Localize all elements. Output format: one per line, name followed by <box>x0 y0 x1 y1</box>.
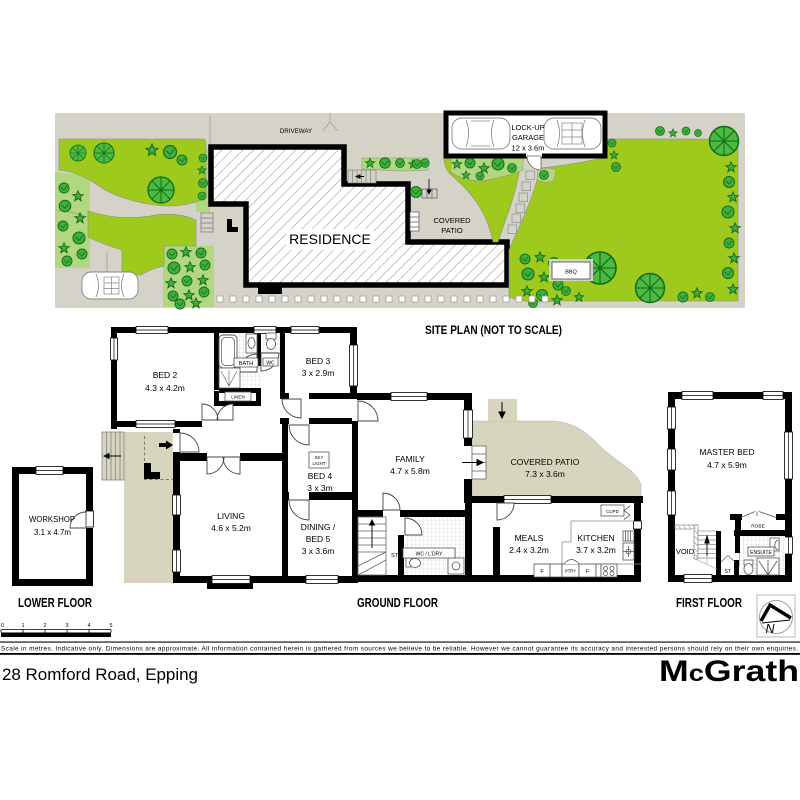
svg-text:3.1 x 4.7m: 3.1 x 4.7m <box>34 527 71 537</box>
svg-text:PATIO: PATIO <box>441 226 463 235</box>
svg-text:3: 3 <box>66 623 69 629</box>
svg-text:4.7 x 5.8m: 4.7 x 5.8m <box>390 466 430 476</box>
svg-text:ENSUITE: ENSUITE <box>750 550 772 556</box>
svg-text:3 x 3.6m: 3 x 3.6m <box>302 546 335 556</box>
svg-text:GROUND FLOOR: GROUND FLOOR <box>357 596 438 610</box>
svg-text:3 x 2.9m: 3 x 2.9m <box>302 368 335 378</box>
svg-text:LOCK-UP: LOCK-UP <box>511 123 544 132</box>
svg-text:COVERED: COVERED <box>433 216 471 225</box>
svg-text:BED 3: BED 3 <box>306 356 331 366</box>
svg-text:BATH: BATH <box>239 361 253 367</box>
svg-text:VOID: VOID <box>676 547 695 556</box>
svg-text:RESIDENCE: RESIDENCE <box>289 231 371 247</box>
svg-text:BED 2: BED 2 <box>153 370 178 380</box>
svg-text:LOWER FLOOR: LOWER FLOOR <box>18 596 92 610</box>
svg-text:4: 4 <box>88 623 91 629</box>
svg-text:N: N <box>765 622 775 636</box>
svg-text:3 x 3m: 3 x 3m <box>307 483 333 493</box>
svg-text:DRIVEWAY: DRIVEWAY <box>280 128 312 135</box>
svg-text:MEALS: MEALS <box>515 533 544 543</box>
svg-text:KITCHEN: KITCHEN <box>577 533 614 543</box>
svg-text:WC: WC <box>266 361 275 367</box>
svg-text:SITE PLAN (NOT TO SCALE): SITE PLAN (NOT TO SCALE) <box>425 325 562 337</box>
svg-text:CUPD: CUPD <box>606 509 620 514</box>
svg-text:ST: ST <box>391 553 399 559</box>
svg-text:Scale in metres. Indicative on: Scale in metres. Indicative only. Dimens… <box>1 646 798 653</box>
svg-text:12 x 3.6m: 12 x 3.6m <box>512 144 545 153</box>
svg-text:BED 4: BED 4 <box>308 471 333 481</box>
svg-text:ST: ST <box>725 569 732 575</box>
svg-text:2: 2 <box>44 623 47 629</box>
svg-text:LIGHT: LIGHT <box>313 461 326 466</box>
svg-text:FAMILY: FAMILY <box>395 454 425 464</box>
svg-text:COVERED PATIO: COVERED PATIO <box>511 457 580 467</box>
svg-text:FIRST FLOOR: FIRST FLOOR <box>676 596 742 610</box>
svg-text:MASTER BED: MASTER BED <box>699 447 754 457</box>
svg-text:BED 5: BED 5 <box>306 534 331 544</box>
svg-text:GARAGE: GARAGE <box>512 133 544 142</box>
svg-text:4.7 x 5.9m: 4.7 x 5.9m <box>707 460 747 470</box>
svg-text:ROBE: ROBE <box>751 524 765 530</box>
svg-text:28 Romford Road, Epping: 28 Romford Road, Epping <box>2 665 198 684</box>
svg-text:McGrath: McGrath <box>659 655 799 688</box>
svg-text:5: 5 <box>110 623 113 629</box>
svg-text:2.4 x 3.2m: 2.4 x 3.2m <box>509 545 549 555</box>
svg-text:BBQ: BBQ <box>565 270 577 276</box>
svg-text:DINING /: DINING / <box>301 522 336 532</box>
svg-text:1: 1 <box>22 623 25 629</box>
svg-text:PTRY: PTRY <box>565 569 576 574</box>
svg-text:4.3 x 4.2m: 4.3 x 4.2m <box>145 383 185 393</box>
svg-text:LIVING: LIVING <box>217 511 245 521</box>
svg-text:WC / L'DRY: WC / L'DRY <box>416 552 443 558</box>
svg-text:3.7 x 3.2m: 3.7 x 3.2m <box>576 545 616 555</box>
svg-text:LINEN: LINEN <box>231 395 245 400</box>
svg-text:WORKSHOP: WORKSHOP <box>29 514 75 524</box>
svg-text:0: 0 <box>1 623 4 629</box>
svg-text:7.3 x 3.6m: 7.3 x 3.6m <box>525 469 565 479</box>
svg-text:4.6 x 5.2m: 4.6 x 5.2m <box>211 523 251 533</box>
svg-text:SKY: SKY <box>315 455 324 460</box>
